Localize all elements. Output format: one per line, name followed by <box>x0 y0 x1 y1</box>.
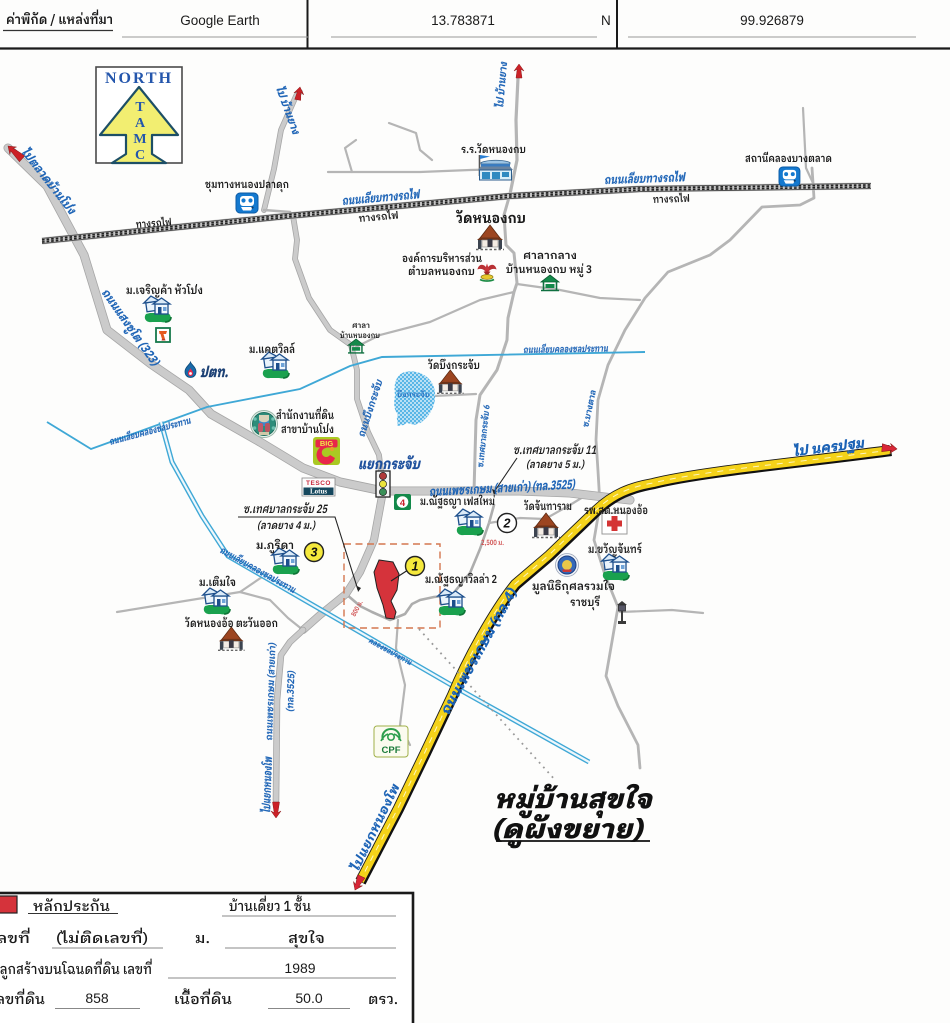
svg-text:Lotus: Lotus <box>310 488 327 496</box>
svg-text:M: M <box>133 132 146 147</box>
svg-text:T: T <box>135 100 145 115</box>
svg-text:N: N <box>601 13 611 28</box>
svg-text:C: C <box>135 148 145 163</box>
svg-text:50.0: 50.0 <box>295 990 322 1006</box>
svg-text:858: 858 <box>85 990 109 1006</box>
svg-text:A: A <box>135 116 146 131</box>
svg-text:13.783871: 13.783871 <box>431 13 495 28</box>
svg-text:1: 1 <box>412 560 419 574</box>
svg-text:2: 2 <box>503 517 511 531</box>
svg-text:TESCO: TESCO <box>306 480 331 487</box>
svg-text:4: 4 <box>400 498 406 509</box>
svg-text:3: 3 <box>311 546 318 560</box>
svg-text:CPF: CPF <box>382 745 401 756</box>
svg-text:NORTH: NORTH <box>105 70 173 87</box>
svg-text:Google Earth: Google Earth <box>180 13 260 28</box>
svg-text:1989: 1989 <box>284 960 315 976</box>
svg-text:99.926879: 99.926879 <box>740 13 804 28</box>
